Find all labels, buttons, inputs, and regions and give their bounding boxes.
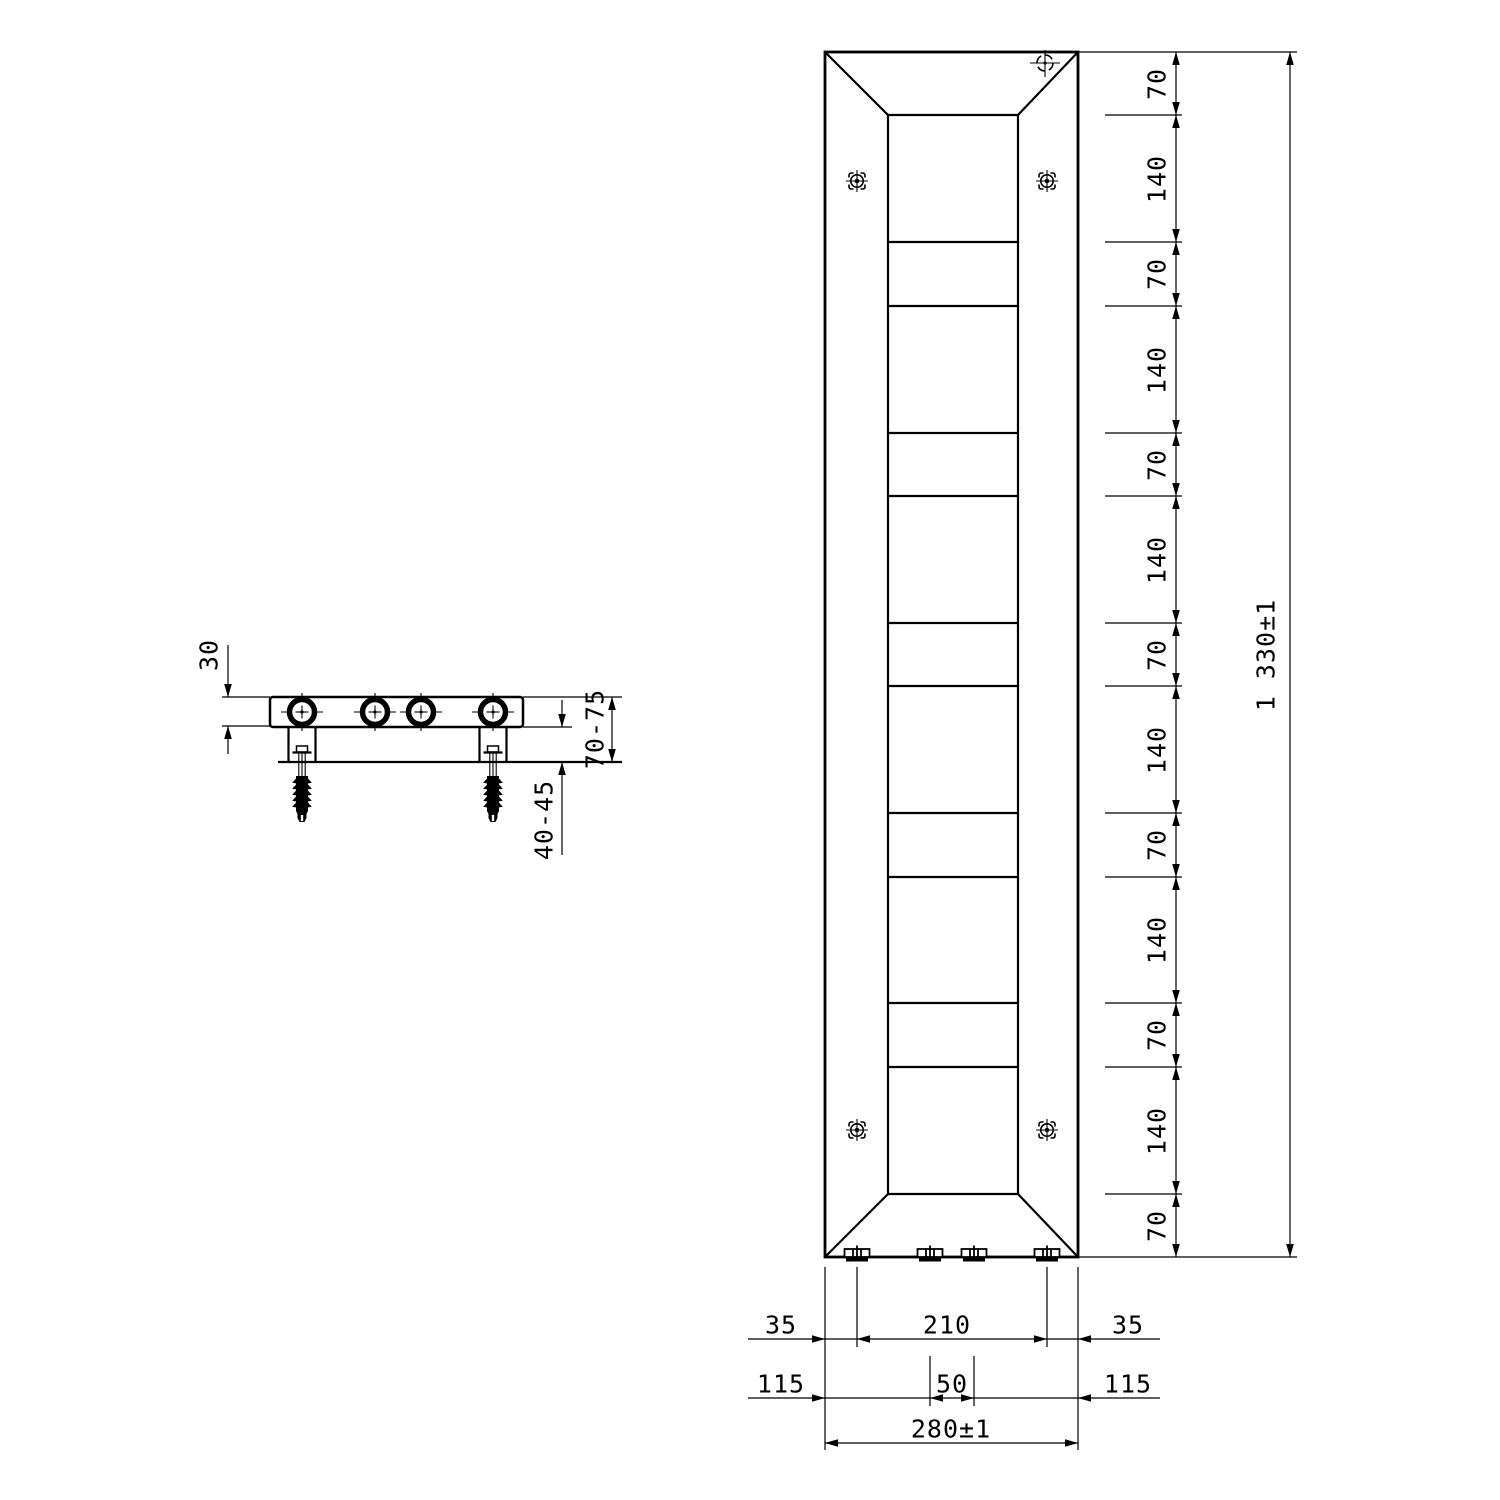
dimension-annotations [748, 52, 1297, 1450]
dim-chain-seg: 70 [1145, 1019, 1170, 1051]
technical-drawing-canvas: 30 70-75 40-45 70 140 70 140 70 140 70 1… [0, 0, 1500, 1500]
dim-chain-seg: 70 [1145, 68, 1170, 100]
wall-anchor-icon [292, 746, 503, 822]
dim-depth: 30 [197, 639, 222, 671]
dim-overall-height: 1 330±1 [1254, 599, 1279, 711]
dim-chain-seg: 70 [1145, 639, 1170, 671]
dim-row2-center: 50 [936, 1372, 968, 1397]
radiator-outline [825, 52, 1078, 1257]
dim-chain-seg: 70 [1145, 1210, 1170, 1242]
dim-row1-center: 210 [923, 1313, 971, 1338]
dim-chain-seg: 140 [1145, 536, 1170, 584]
dim-lines-depth [222, 645, 270, 754]
dim-overall-width: 280±1 [911, 1417, 991, 1442]
engineering-drawing [0, 0, 1500, 1500]
side-view [222, 645, 622, 855]
pipe-stub-icon [845, 1246, 1060, 1262]
front-view [825, 50, 1078, 1262]
dim-chain-seg: 140 [1145, 726, 1170, 774]
dim-chain-seg: 70 [1145, 829, 1170, 861]
dim-row1-left: 35 [765, 1313, 797, 1338]
dim-row1-right: 35 [1112, 1313, 1144, 1338]
dim-chain-seg: 140 [1145, 346, 1170, 394]
panel-grooves [888, 242, 1018, 1067]
dim-front-to-wall: 70-75 [583, 689, 608, 769]
dim-chain-seg: 140 [1145, 1107, 1170, 1155]
mounting-point-icon [846, 170, 1058, 1141]
dim-row2-right: 115 [1104, 1372, 1152, 1397]
dim-chain-seg: 70 [1145, 258, 1170, 290]
air-vent-icon [1030, 50, 1060, 77]
dim-anchor-embed: 40-45 [532, 780, 557, 860]
dim-row2-left: 115 [757, 1372, 805, 1397]
dim-chain-seg: 140 [1145, 916, 1170, 964]
dim-chain-seg: 70 [1145, 449, 1170, 481]
dim-chain-seg: 140 [1145, 155, 1170, 203]
